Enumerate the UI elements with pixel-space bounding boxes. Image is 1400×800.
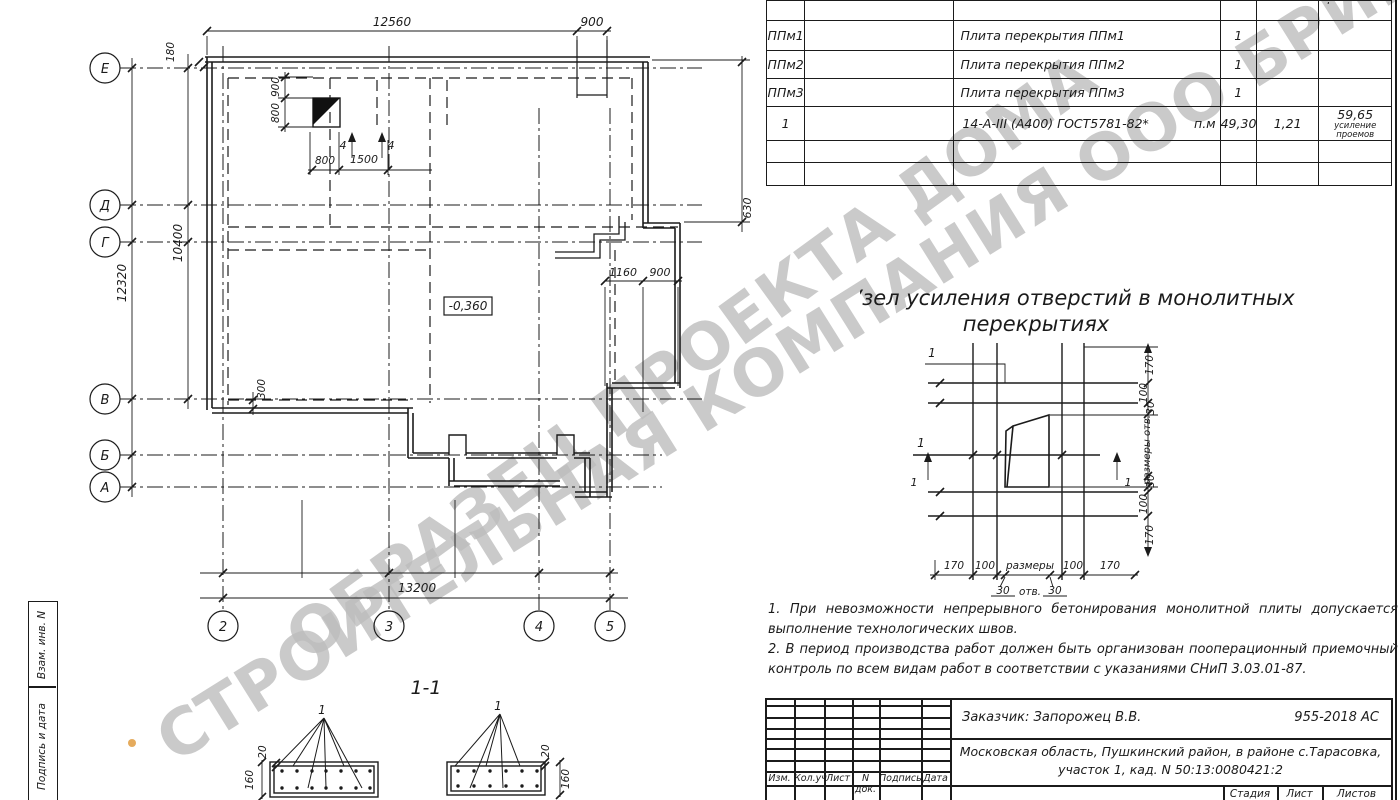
spec-header-mass: Массаед. кг (1257, 2, 1319, 4)
detail-arrows (924, 343, 1152, 557)
detail-mark-left: 1 (917, 436, 925, 450)
tb-col-izm: Изм. (765, 773, 794, 784)
leader-lines (277, 714, 520, 788)
dim-right-offset: 630 (741, 198, 754, 219)
section-dim-height-left: 160 (244, 770, 256, 790)
strip-label-vzam: Взам. инв. N (36, 602, 52, 688)
axis-label-a: А (100, 481, 110, 496)
frame-side-strip: Взам. инв. N Подпись и дата (28, 601, 58, 800)
spec-row-ppm1: ППм1 Плита перекрытия ППм1 1 (767, 21, 1392, 51)
spec-cell: ППм3 (767, 79, 805, 107)
note-2: 2. В период производства работ должен бы… (768, 640, 1398, 679)
dim-left-outer: 12320 (115, 264, 129, 303)
plan-dimension-texts: 12560 900 180 12320 10400 13200 900 800 … (115, 15, 754, 595)
spec-cell (805, 79, 954, 107)
section-dim-cover-right: 20 (540, 744, 552, 758)
spec-cell (1319, 141, 1392, 163)
dim-bottom-main: 13200 (398, 581, 437, 595)
detail-dim-r30b: 30 (1145, 474, 1157, 488)
spec-cell (1220, 163, 1256, 186)
spec-cell (1256, 79, 1319, 107)
spec-header-designation: Обозначение (805, 2, 953, 5)
detail-dim-b100a: 100 (975, 560, 995, 572)
spec-cell (805, 21, 954, 51)
spec-cell: ППм1 (767, 21, 805, 51)
spec-cell (1319, 79, 1392, 107)
dim-opening-h2: 1500 (350, 153, 378, 166)
strip-label-podpis: Подпись и дата (36, 704, 52, 790)
orange-dot-artifact (128, 739, 136, 747)
spec-header-row: Поз. Обозначение Наименование Кол. Масса… (767, 1, 1392, 21)
spec-cell: 1 (1220, 21, 1256, 51)
dim-opening-v1: 900 (270, 77, 282, 97)
tb-col-list: Лист (824, 773, 852, 784)
tb-customer: Заказчик: Запорожец В.В. (962, 710, 1141, 725)
spec-cell: 1,21 (1256, 107, 1319, 141)
spec-cell: Плита перекрытия ППм3 (954, 79, 1220, 107)
detail-dim-r100a: 100 (1138, 383, 1150, 403)
spec-cell (805, 107, 954, 141)
tb-col-podpis: Подпись (879, 773, 921, 784)
spec-rebar-note: 59,65 (1319, 108, 1391, 122)
tb-address-line1: Московская область, Пушкинский район, в … (950, 744, 1391, 759)
tb-stage-label: Стадия (1223, 788, 1277, 800)
spec-header-note: Примечание (1319, 2, 1391, 5)
detail-dim-lines (925, 347, 1158, 596)
dim-top-right: 900 (581, 15, 604, 29)
spec-cell: 1 (1220, 51, 1256, 79)
dim-top-left: 180 (165, 42, 177, 62)
section-mark-4-right: 4 (388, 139, 395, 152)
detail-dim-r100b: 100 (1138, 494, 1150, 514)
spec-rebar-name: 14-А-III (А400) ГОСТ5781-82* (962, 116, 1148, 131)
spec-cell: 49,30 (1220, 107, 1256, 141)
spec-cell: ППм2 (767, 51, 805, 79)
dim-step: 300 (256, 379, 268, 399)
detail-dim-r170a: 170 (1144, 355, 1156, 375)
spec-cell: Плита перекрытия ППм1 (954, 21, 1220, 51)
section-title: 1-1 (410, 677, 441, 699)
axis-label-2: 2 (219, 620, 227, 635)
spec-cell: Плита перекрытия ППм2 (954, 51, 1220, 79)
spec-header-qty: Кол. (1221, 2, 1256, 5)
spec-row-rebar: 1 14-А-III (А400) ГОСТ5781-82*п.м 49,30 … (767, 107, 1392, 141)
level-mark-value: -0,360 (449, 299, 488, 313)
tb-col-koluch: Кол.уч (794, 773, 824, 784)
floor-plan-drawing: Е Д Г В Б А 2 3 4 5 12560 900 180 12320 … (0, 0, 770, 800)
axis-labels: Е Д Г В Б А 2 3 4 5 (99, 62, 614, 635)
detail-label-sizes: размеры (1005, 560, 1054, 572)
detail-title-line2: перекрытиях (963, 312, 1110, 336)
detail-opening-outline (1005, 415, 1049, 487)
specification-table: Поз. Обозначение Наименование Кол. Масса… (766, 0, 1392, 186)
spec-cell (1319, 163, 1392, 186)
spec-row-ppm2: ППм2 Плита перекрытия ППм2 1 (767, 51, 1392, 79)
detail-dim-r170b: 170 (1144, 525, 1156, 545)
detail-texts: 1 1 1 1 170 100 30 размеры отв. 30 100 1… (911, 346, 1158, 598)
detail-dim-b170b: 170 (1100, 560, 1120, 572)
dim-bay1: 1160 (609, 266, 637, 279)
spec-row-empty1 (767, 141, 1392, 163)
section-4-arrows (348, 132, 386, 142)
section-mark-4-left: 4 (340, 139, 347, 152)
note-1: 1. При невозможности непрерывного бетони… (768, 600, 1398, 639)
spec-cell (1319, 51, 1392, 79)
slab-opening-marker (313, 98, 340, 127)
reinforcement-detail-drawing: Узел усиления отверстий в монолитных пер… (860, 282, 1330, 602)
detail-grid-lines (913, 343, 1138, 580)
spec-cell (767, 163, 805, 186)
detail-label-otv: отв. (1019, 586, 1041, 598)
axis-label-e: Е (101, 62, 110, 77)
level-mark: -0,360 (444, 297, 492, 315)
dim-opening-v2: 800 (270, 103, 282, 123)
spec-cell (805, 51, 954, 79)
dim-top-main: 12560 (373, 15, 412, 29)
spec-cell: 1 (767, 107, 805, 141)
section-1-1: 1-1 1 1 160 20 160 20 (244, 677, 572, 797)
spec-cell (1220, 141, 1256, 163)
tb-col-data: Дата (921, 773, 950, 784)
axis-label-d: Д (99, 199, 110, 214)
section-rebar-mark-left: 1 (318, 703, 326, 717)
general-notes: 1. При невозможности непрерывного бетони… (768, 600, 1398, 680)
detail-mark-arrow-left: 1 (911, 476, 918, 489)
spec-cell (1256, 51, 1319, 79)
axis-label-5: 5 (606, 620, 614, 635)
tb-project-code: 955-2018 АС (1294, 710, 1379, 725)
sheet-frame-right (1395, 0, 1397, 800)
detail-dim-b30a: 30 (996, 585, 1010, 597)
spec-cell (1256, 141, 1319, 163)
section-dim-height-right: 160 (560, 769, 572, 789)
spec-row-ppm3: ППм3 Плита перекрытия ППм3 1 (767, 79, 1392, 107)
axis-label-4: 4 (535, 620, 543, 635)
spec-rebar-note2: усиление проемов (1319, 122, 1391, 140)
spec-row-empty2 (767, 163, 1392, 186)
spec-cell: 1 (1220, 79, 1256, 107)
title-block: Изм. Кол.уч Лист N док. Подпись Дата Зак… (765, 698, 1393, 800)
tb-address-line2: участок 1, кад. N 50:13:0080421:2 (950, 762, 1391, 777)
detail-dim-r30a: 30 (1145, 401, 1157, 415)
axis-label-b: Б (101, 449, 110, 464)
detail-dim-ticks (931, 379, 1152, 579)
spec-header-name: Наименование (954, 2, 1219, 5)
rebar-dots (280, 769, 538, 789)
tb-sheets-label: Листов (1322, 788, 1391, 800)
tb-sheet-label: Лист (1277, 788, 1322, 800)
detail-dim-b170a: 170 (944, 560, 964, 572)
spec-cell (954, 141, 1220, 163)
axis-label-g: Г (101, 236, 110, 251)
spec-cell (805, 141, 954, 163)
spec-cell (954, 163, 1220, 186)
spec-cell (805, 163, 954, 186)
detail-title-line1: Узел усиления отверстий в монолитных (860, 286, 1295, 310)
detail-mark-corner: 1 (928, 346, 936, 360)
section-dim-cover-left: 20 (257, 745, 269, 759)
axis-circles (90, 53, 625, 641)
tb-col-ndok: N док. (852, 773, 879, 795)
spec-cell (1256, 21, 1319, 51)
detail-dim-b100b: 100 (1063, 560, 1083, 572)
spec-cell (1319, 21, 1392, 51)
axis-label-3: 3 (385, 620, 393, 635)
dim-opening-h1: 800 (315, 155, 335, 167)
spec-cell (1256, 163, 1319, 186)
dim-left-inner: 10400 (171, 224, 185, 263)
section-rebar-mark-right: 1 (494, 699, 502, 713)
detail-dim-b30b: 30 (1048, 585, 1062, 597)
spec-cell (767, 141, 805, 163)
spec-header-pos: Поз. (767, 2, 804, 5)
detail-mark-arrow-right: 1 (1125, 476, 1132, 489)
dim-bay2: 900 (650, 266, 671, 279)
axis-label-v: В (101, 393, 110, 408)
spec-rebar-unit: п.м (1194, 116, 1216, 131)
